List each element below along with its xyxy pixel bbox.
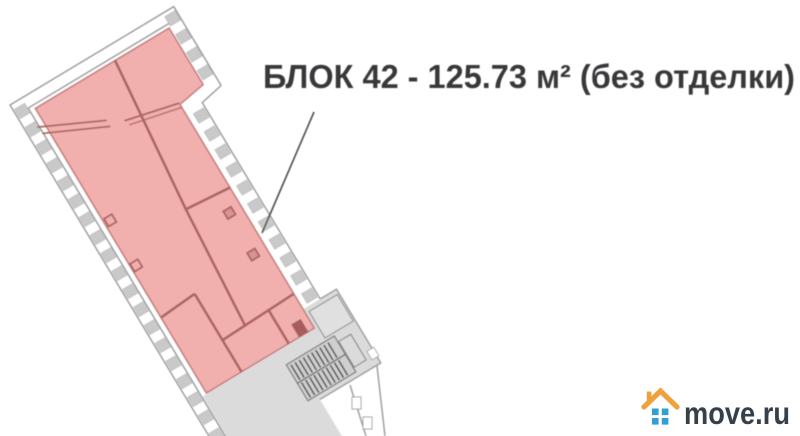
svg-text:БЛОК 42 - 125.73 м² (без отдел: БЛОК 42 - 125.73 м² (без отделки) <box>263 58 795 95</box>
svg-text:move.ru: move.ru <box>684 395 790 431</box>
